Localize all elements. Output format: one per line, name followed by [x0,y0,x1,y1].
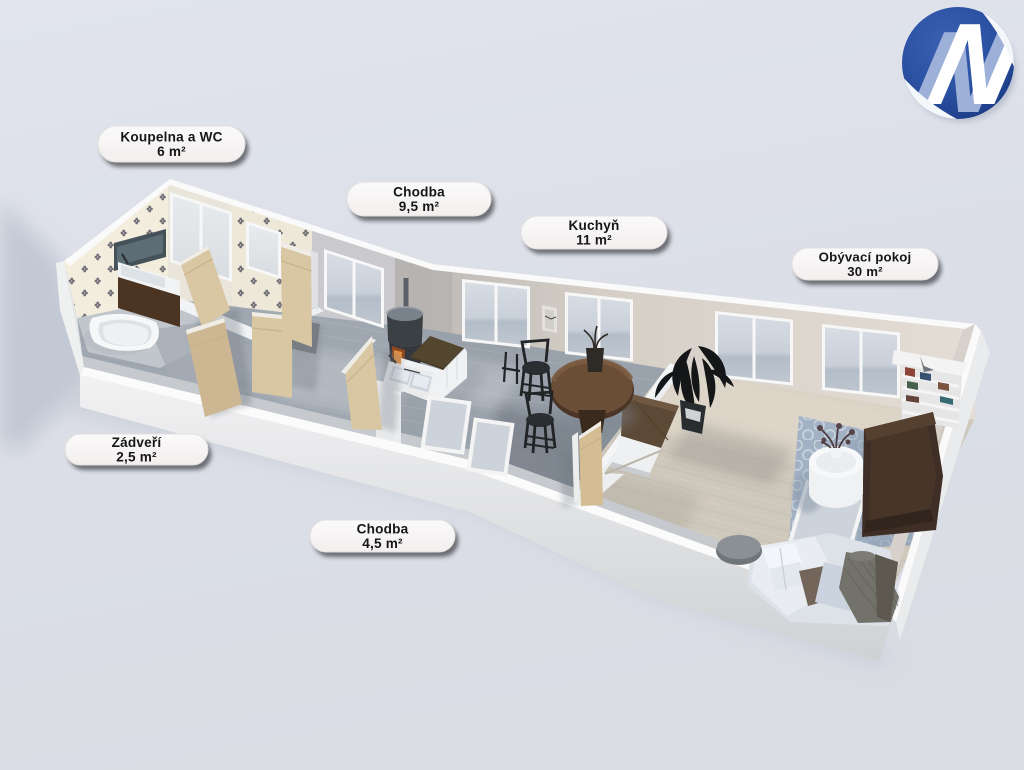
svg-text:6 m²: 6 m² [157,144,186,159]
svg-text:11 m²: 11 m² [576,233,612,248]
svg-text:9,5 m²: 9,5 m² [399,199,440,214]
svg-text:Zádveří: Zádveří [112,435,163,450]
svg-text:4,5 m²: 4,5 m² [362,536,403,551]
svg-text:Kuchyň: Kuchyň [568,218,619,233]
svg-text:Koupelna a WC: Koupelna a WC [120,130,222,145]
svg-text:Chodba: Chodba [393,185,445,200]
svg-text:Obývací pokoj: Obývací pokoj [819,250,912,265]
svg-text:30 m²: 30 m² [847,264,883,279]
svg-text:2,5 m²: 2,5 m² [116,450,157,465]
svg-text:Chodba: Chodba [357,522,409,537]
